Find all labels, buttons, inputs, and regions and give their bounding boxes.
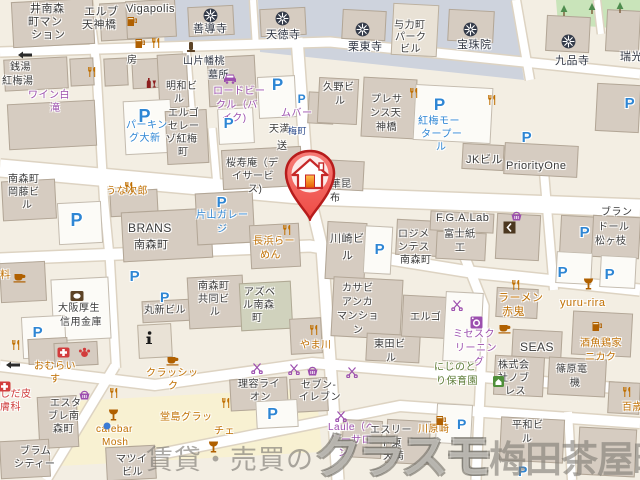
temple-icon <box>463 22 478 42</box>
pub-icon <box>435 413 447 431</box>
map-label: 町 <box>178 148 189 158</box>
map-label: ル <box>436 143 447 153</box>
parking-icon: P <box>160 290 169 304</box>
map-label: 天満 <box>383 452 404 462</box>
map-label: エルブ <box>84 7 119 18</box>
map-label: セブン- <box>301 381 336 391</box>
map-label: yuru-rira <box>560 298 605 309</box>
map-label: ル <box>210 308 221 318</box>
map-label: 富士紙 <box>444 230 476 240</box>
map-label: 信用金庫 <box>60 318 102 328</box>
parking-icon: P <box>71 211 83 229</box>
tree-icon <box>559 4 569 22</box>
bank-icon <box>70 289 84 307</box>
map-label: 町マン <box>28 17 63 28</box>
map-label: ブラム <box>20 447 51 457</box>
map-label: 天神橋 <box>82 20 117 31</box>
map-label: 丸新ビル <box>144 306 186 316</box>
liquor-bar-icon <box>145 76 157 94</box>
map-label: セレー <box>168 122 200 132</box>
map-label: マツイ <box>116 455 148 465</box>
one-way-arrow-icon <box>6 356 20 374</box>
map-label: 南森町 <box>400 256 432 266</box>
map-label: 井南森 <box>30 4 65 15</box>
map-canvas[interactable]: 賃貸・売買のクラスモ梅田茶屋町店 井南森町マンションエルブ天神橋Vigapoli… <box>0 0 640 480</box>
pub-icon <box>134 36 146 54</box>
map-label: チェ <box>214 427 235 437</box>
map-label: PriorityOne <box>506 161 567 172</box>
map-label: プレサ <box>371 95 403 105</box>
map-label: ンス天 <box>370 109 401 119</box>
map-label: ス) <box>248 185 262 195</box>
map-label: ビル <box>400 45 421 55</box>
parking-icon: P <box>130 269 140 284</box>
beauty-salon-icon <box>251 361 263 379</box>
nursery-icon <box>493 374 504 392</box>
map-label: カサビ <box>342 284 374 294</box>
road <box>544 172 554 290</box>
map-label: ン） <box>338 449 359 459</box>
map-label: 東田ビ <box>374 340 406 350</box>
map-label: 瑞光 <box>620 52 640 63</box>
beauty-salon-icon <box>451 298 463 316</box>
bar-icon <box>208 440 219 458</box>
restaurant-icon <box>86 65 98 83</box>
map-label: ル <box>22 201 33 211</box>
parking-icon: P <box>224 116 234 131</box>
parking-icon: P <box>580 225 590 240</box>
map-label: 篠原電 <box>556 365 588 375</box>
map-label: ジ <box>217 225 228 235</box>
temple-icon <box>561 34 576 54</box>
property-location-pin[interactable] <box>279 147 341 226</box>
parking-icon: P <box>33 325 43 340</box>
temple-icon <box>203 8 218 28</box>
map-label: 堂島グラッ <box>160 413 213 423</box>
map-label: イサービ <box>232 172 274 182</box>
map-label: ル <box>335 97 346 107</box>
historic-grave-icon <box>185 40 197 58</box>
map-label: 紅梅モー <box>418 117 460 127</box>
restaurant-icon <box>220 396 232 414</box>
building <box>577 427 637 478</box>
map-label: 川崎ビ <box>330 234 365 245</box>
map-label: グ <box>474 358 485 368</box>
map-label: リーニン <box>455 344 497 354</box>
bookstore-icon <box>503 221 516 239</box>
map-label: cafebar <box>96 425 133 435</box>
map-label: Mosh <box>102 438 128 448</box>
map-label: 九品寺 <box>555 56 590 67</box>
parking-icon: P <box>298 93 306 105</box>
map-label: 久野ビ <box>323 83 355 93</box>
parking-icon: P <box>457 417 466 431</box>
map-label: ド東 <box>381 439 402 449</box>
map-label: 桜寿庵（デ <box>226 159 279 169</box>
map-label: 房 <box>127 56 138 66</box>
parking-icon: P <box>605 267 615 282</box>
road <box>253 0 256 48</box>
restaurant-icon <box>10 338 22 356</box>
parking-icon: P <box>217 195 227 210</box>
map-label: 南森町 <box>134 240 169 251</box>
map-label: 森町 <box>53 425 74 435</box>
map-label: 神橋 <box>376 123 397 133</box>
map-label: ション <box>31 30 66 41</box>
map-label: イレブン <box>299 393 341 403</box>
parking-icon: P <box>518 464 527 478</box>
map-label: シティー <box>14 460 55 470</box>
home-pin-icon <box>279 147 341 221</box>
map-label: 理容ライ <box>238 380 280 390</box>
map-label: 明和ビ <box>166 82 198 92</box>
parking-icon: P <box>267 407 278 423</box>
laundry-icon <box>470 316 483 334</box>
map-label: ビル <box>122 468 143 478</box>
map-label: ク <box>168 382 179 392</box>
vehicle-shop-icon <box>223 71 237 89</box>
cafe-icon <box>166 353 179 371</box>
map-label: 岡藤ビ <box>8 188 40 198</box>
restaurant-icon <box>486 93 498 111</box>
map-label: 栗東寺 <box>348 42 383 53</box>
map-label: エルゴ <box>168 109 199 119</box>
map-label: 株式会 <box>498 361 530 371</box>
map-label: やま川 <box>300 341 332 351</box>
parking-icon: P <box>522 130 532 145</box>
restaurant-icon <box>123 180 135 198</box>
map-label: ロードビー <box>213 87 266 97</box>
map-label: ル <box>342 251 354 262</box>
shopping-icon <box>78 388 91 406</box>
cafe-icon <box>13 270 26 288</box>
map-label: す <box>50 375 61 385</box>
map-label: アーサロ <box>331 436 372 446</box>
shopping-icon <box>306 364 319 382</box>
map-label: マンショ <box>337 312 379 322</box>
map-label: 紅梅湯 <box>2 77 34 87</box>
restaurant-icon <box>621 385 633 403</box>
map-label: エスタ <box>50 399 82 409</box>
map-label: パーク <box>395 33 427 43</box>
map-label: エスリー <box>370 426 412 436</box>
restaurant-icon <box>150 36 162 54</box>
map-label: 天徳寺 <box>266 30 301 41</box>
map-label: エルゴ <box>410 313 441 323</box>
restaurant-icon <box>108 386 120 404</box>
information-icon <box>145 331 153 350</box>
map-label: JKビル <box>466 155 503 166</box>
temple-icon <box>275 11 290 31</box>
map-label: 銭湯 <box>10 63 31 73</box>
beauty-salon-icon <box>346 365 358 383</box>
map-label: 梅町 <box>288 127 307 136</box>
clinic-icon <box>0 380 11 398</box>
map-label: レス <box>505 387 526 397</box>
map-label: オン <box>250 393 271 403</box>
map-label: 機 <box>570 379 581 389</box>
pet-clinic-icon <box>78 345 91 363</box>
temple-icon <box>355 22 370 42</box>
map-label: 赤鬼 <box>502 307 525 318</box>
map-label: 与力町 <box>394 21 426 31</box>
map-label: 共同ビ <box>198 295 230 305</box>
map-label: クル（バ <box>216 101 258 111</box>
parking-icon: P <box>272 76 283 93</box>
restaurant-icon <box>308 323 320 341</box>
map-label: 山片幡桃 <box>183 57 225 67</box>
restaurant-icon <box>408 86 420 104</box>
bar-icon <box>583 277 594 295</box>
map-label: ロジメ <box>398 230 430 240</box>
map-label: 膚科 <box>0 403 21 413</box>
map-label: ムバー <box>281 109 313 119</box>
map-label: タープー <box>421 130 462 140</box>
map-label: SEAS <box>520 341 554 353</box>
map-label: ゾ紅梅 <box>166 135 198 145</box>
map-label: ル <box>386 354 397 364</box>
tree-icon <box>615 1 625 19</box>
road <box>597 0 601 34</box>
beauty-salon-icon <box>288 362 300 380</box>
parking-icon: P <box>625 96 635 111</box>
map-label: 料 <box>0 271 11 281</box>
pub-icon <box>591 319 603 337</box>
map-label: 町 <box>252 314 263 324</box>
map-label: 南森町 <box>8 175 40 185</box>
map-label: ンテス <box>398 243 430 253</box>
map-label: 滝 <box>50 104 61 114</box>
map-label: ブレ南 <box>48 412 80 422</box>
clinic-icon <box>57 346 70 364</box>
map-label: 工 <box>455 244 466 254</box>
map-label: 天満 <box>269 125 290 135</box>
map-label: 片山ガレー <box>196 211 249 221</box>
parking-icon: P <box>558 265 568 280</box>
map-label: ル <box>174 95 185 105</box>
map-label: り保育園 <box>436 377 478 387</box>
map-label: BRANS <box>128 222 172 234</box>
map-label: ドール <box>598 223 630 233</box>
map-label: ブラン <box>601 208 633 218</box>
map-label: ニカク <box>585 353 617 363</box>
map-label: アズベ <box>244 288 276 298</box>
map-label: ル南森 <box>243 301 275 311</box>
building <box>103 57 128 86</box>
one-way-arrow-icon <box>18 46 32 64</box>
map-label: めん <box>260 251 281 261</box>
pub-icon <box>126 14 138 32</box>
tree-icon <box>587 2 597 20</box>
beauty-salon-icon <box>335 409 347 427</box>
map-label: F.G.A.Lab <box>436 213 489 224</box>
map-label: ル <box>522 435 533 445</box>
map-label: グ大新 <box>129 134 161 144</box>
map-label: アンカ <box>342 298 373 308</box>
poi-dot-icon <box>103 417 111 435</box>
restaurant-icon <box>510 278 522 296</box>
parking-icon: P <box>139 107 151 125</box>
map-label: 酒魚鶏家 <box>580 339 622 349</box>
map-label: 南森町 <box>198 282 230 292</box>
map-label: にじのと <box>434 363 476 373</box>
map-label: 松ヶ枝 <box>595 237 627 247</box>
cafe-icon <box>498 321 511 339</box>
map-label: 平和ビ <box>512 421 544 431</box>
map-label: ワイン白 <box>28 91 70 101</box>
parking-icon: P <box>434 96 445 113</box>
road <box>568 412 572 480</box>
map-label: ン <box>353 326 364 336</box>
parking-icon: P <box>375 242 385 257</box>
road <box>212 128 217 186</box>
map-label: 百歳 <box>622 403 640 413</box>
